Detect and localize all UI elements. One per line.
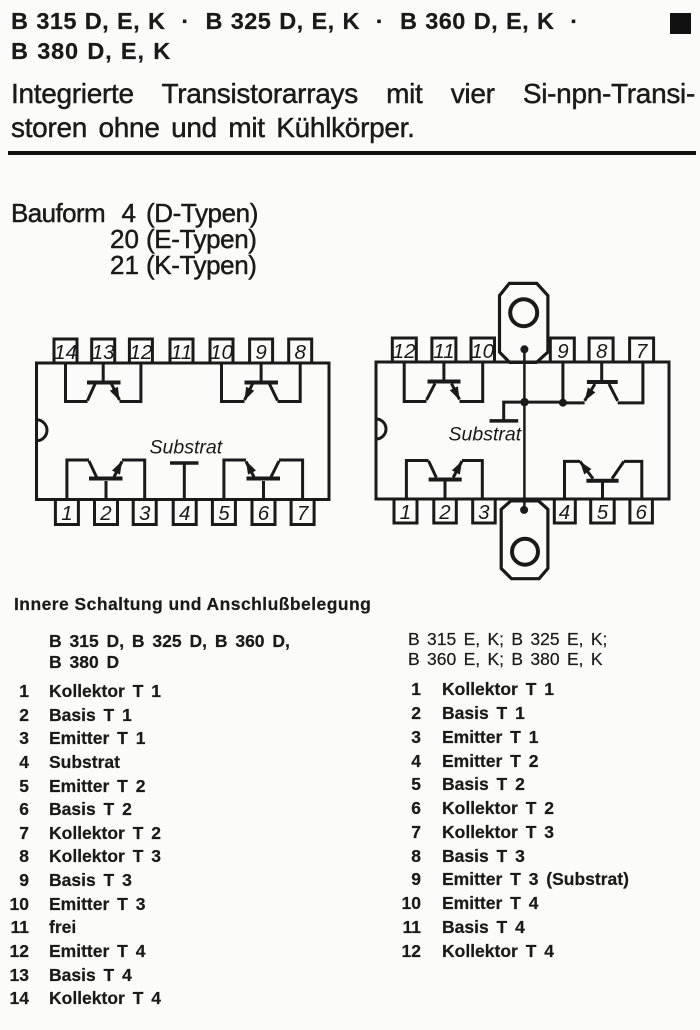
svg-text:14: 14 [54, 341, 77, 364]
svg-text:9: 9 [255, 341, 266, 364]
svg-text:Substrat: Substrat [449, 424, 523, 446]
svg-text:1: 1 [61, 502, 72, 525]
svg-text:4: 4 [559, 501, 570, 524]
svg-text:6: 6 [258, 502, 270, 525]
svg-text:Substrat: Substrat [150, 437, 224, 459]
svg-text:7: 7 [636, 340, 649, 363]
svg-text:5: 5 [597, 501, 609, 524]
svg-text:1: 1 [400, 501, 411, 524]
svg-text:12: 12 [393, 340, 416, 363]
svg-text:6: 6 [635, 501, 647, 524]
svg-text:10: 10 [471, 340, 494, 363]
svg-text:11: 11 [171, 341, 192, 364]
svg-text:3: 3 [139, 502, 151, 525]
svg-text:9: 9 [557, 340, 568, 363]
svg-text:11: 11 [433, 340, 454, 363]
svg-text:4: 4 [179, 502, 190, 525]
svg-text:12: 12 [129, 341, 152, 364]
svg-text:8: 8 [294, 341, 306, 364]
svg-text:2: 2 [438, 501, 451, 524]
svg-text:5: 5 [218, 502, 230, 525]
svg-text:8: 8 [596, 340, 608, 363]
svg-text:10: 10 [210, 341, 233, 364]
svg-text:13: 13 [92, 341, 115, 364]
svg-text:2: 2 [99, 502, 112, 525]
svg-text:7: 7 [297, 502, 310, 525]
svg-text:3: 3 [478, 501, 490, 524]
